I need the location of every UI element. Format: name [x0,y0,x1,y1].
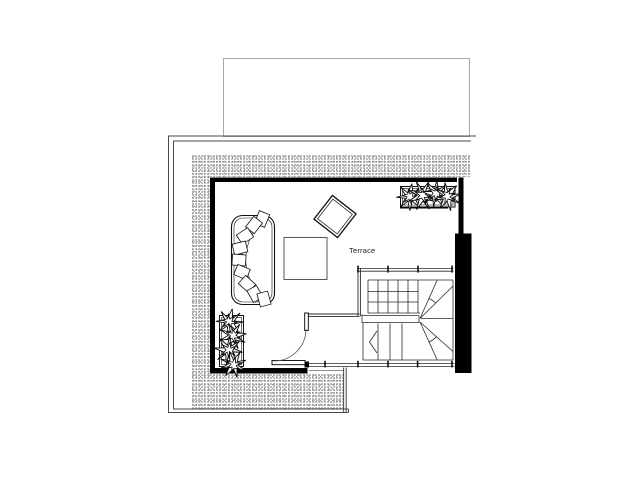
floor-plan-canvas: Terrace [0,0,640,480]
coffee-table [284,238,327,280]
wall-right-column [455,233,471,373]
plan-drawing [0,0,640,480]
railing-bottom [309,361,455,368]
wall-bottom [210,368,308,373]
door-swing-arc [274,329,306,361]
wall-left [210,177,215,373]
sofa [232,211,275,307]
side-table [314,195,356,237]
partition-and-door [272,268,360,364]
stairs [362,280,453,360]
room-label: Terrace [349,246,375,255]
stair-direction-arrow [370,331,378,353]
door-jamb [305,313,309,331]
wall-top [210,177,457,182]
railing-top [357,266,454,273]
wall-right-upper [459,177,464,233]
